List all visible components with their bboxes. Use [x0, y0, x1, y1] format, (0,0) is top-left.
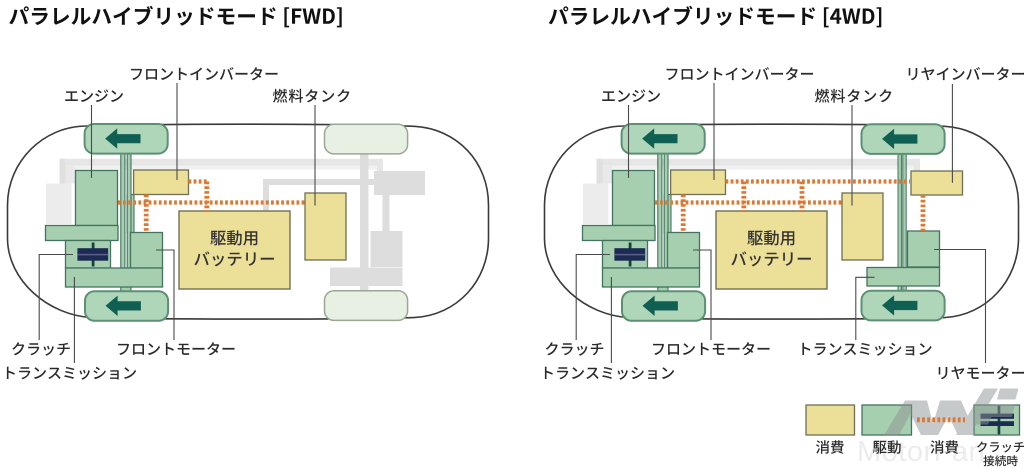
svg-text:MotorFan: MotorFan	[857, 436, 985, 468]
